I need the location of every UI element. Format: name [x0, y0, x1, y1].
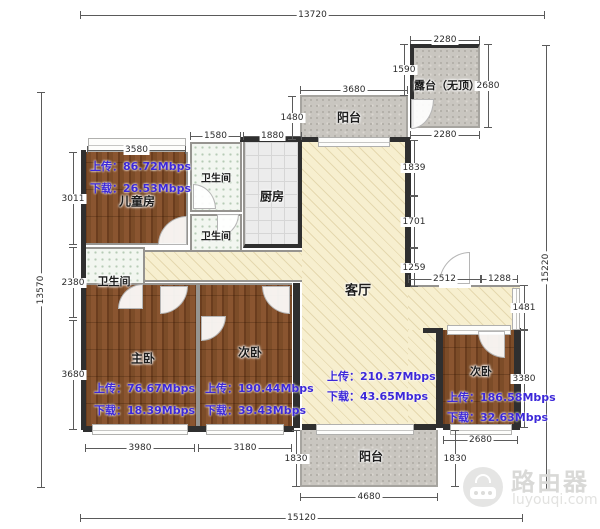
- dim-balcony-bottom-left: 1830: [292, 430, 300, 487]
- dim-step-w1: 2512: [408, 275, 481, 283]
- dim-children-left: 3011: [69, 152, 77, 245]
- speed-bed-mid-download: 下载：39.43Mbps: [205, 400, 314, 422]
- label-balcony-bottom: 阳台: [359, 448, 383, 465]
- speed-children: 上传：86.72Mbps 下载：26.53Mbps: [90, 156, 191, 200]
- dim-balcony-bottom-w: 4680: [300, 493, 438, 501]
- dim-top-total: 13720: [80, 11, 545, 19]
- dim-bath-top-w: 1580: [190, 132, 241, 140]
- dim-left-total: 13570: [37, 92, 45, 488]
- watermark: 路由器 luyouqi.com: [455, 458, 600, 520]
- speed-bed-mid-upload: 上传：190.44Mbps: [205, 378, 314, 400]
- speed-living-upload: 上传：210.37Mbps: [327, 367, 436, 387]
- dim-terrace-right: 2680: [484, 44, 492, 128]
- label-bath-mid: 卫生间: [201, 228, 231, 243]
- label-bed-mid: 次卧: [238, 344, 262, 361]
- label-living: 客厅: [345, 280, 371, 299]
- watermark-site: luyouqi.com: [512, 492, 598, 508]
- router-logo-icon: [463, 467, 503, 507]
- speed-bed-right-upload: 上传：186.58Mbps: [447, 388, 556, 408]
- label-bath-left: 卫生间: [98, 273, 131, 289]
- wall-bedright-left: [436, 330, 443, 428]
- speed-bed-right: 上传：186.58Mbps 下载：32.63Mbps: [447, 388, 556, 428]
- speed-living: 上传：210.37Mbps 下载：43.65Mbps: [327, 367, 436, 407]
- window-living-bottom: [316, 424, 414, 435]
- speed-master: 上传：76.67Mbps 下载：18.39Mbps: [94, 378, 195, 422]
- floor-plan: 13720 15120 13570 15220 3580 1580 1880 3…: [0, 0, 600, 529]
- speed-living-download: 下载：43.65Mbps: [327, 387, 436, 407]
- dim-living-right-1: 1839: [410, 140, 418, 196]
- dim-master-left: 3680: [69, 320, 77, 430]
- label-bed-right: 次卧: [470, 363, 492, 379]
- window-bedmid-bottom: [206, 424, 284, 435]
- dim-terrace-top: 2280: [410, 36, 480, 44]
- dim-master-bottom: 3980: [85, 444, 195, 452]
- dim-living-right-2: 1701: [410, 196, 418, 248]
- room-living-ext: [408, 285, 520, 330]
- window-master-bottom: [92, 424, 188, 435]
- dim-step-w2: 1288: [481, 275, 518, 283]
- dim-bedmid-bottom: 3180: [198, 444, 292, 452]
- label-kitchen: 厨房: [260, 188, 284, 205]
- dim-terrace-left: 1590: [400, 44, 408, 96]
- wall-bedright-stub: [423, 328, 443, 333]
- wall-left-exterior: [81, 150, 86, 430]
- speed-bed-right-download: 下载：32.63Mbps: [447, 408, 556, 428]
- label-master: 主卧: [131, 350, 155, 367]
- dim-terrace-bottom: 2280: [410, 131, 480, 139]
- wifi-arc-icon: [475, 474, 491, 483]
- speed-bed-mid: 上传：190.44Mbps 下载：39.43Mbps: [205, 378, 314, 422]
- label-bath-top: 卫生间: [201, 170, 231, 185]
- dim-balcony-top-w: 3680: [300, 86, 408, 94]
- dim-bath-left-h: 2380: [69, 247, 77, 318]
- dim-children-top: 3580: [87, 146, 186, 154]
- corridor: [145, 250, 302, 282]
- label-terrace: 露台（无顶）: [414, 77, 480, 93]
- dim-step-right: 1481: [520, 285, 528, 330]
- speed-master-download: 下载：18.39Mbps: [94, 400, 195, 422]
- dim-balcony-top-h: 1480: [288, 96, 296, 140]
- speed-children-download: 下载：26.53Mbps: [90, 178, 191, 200]
- window-living-top: [318, 137, 390, 147]
- router-body-icon: [470, 487, 496, 499]
- label-balcony-top: 阳台: [337, 109, 361, 126]
- speed-master-upload: 上传：76.67Mbps: [94, 378, 195, 400]
- dim-living-right-3: 1259: [410, 248, 418, 287]
- speed-children-upload: 上传：86.72Mbps: [90, 156, 191, 178]
